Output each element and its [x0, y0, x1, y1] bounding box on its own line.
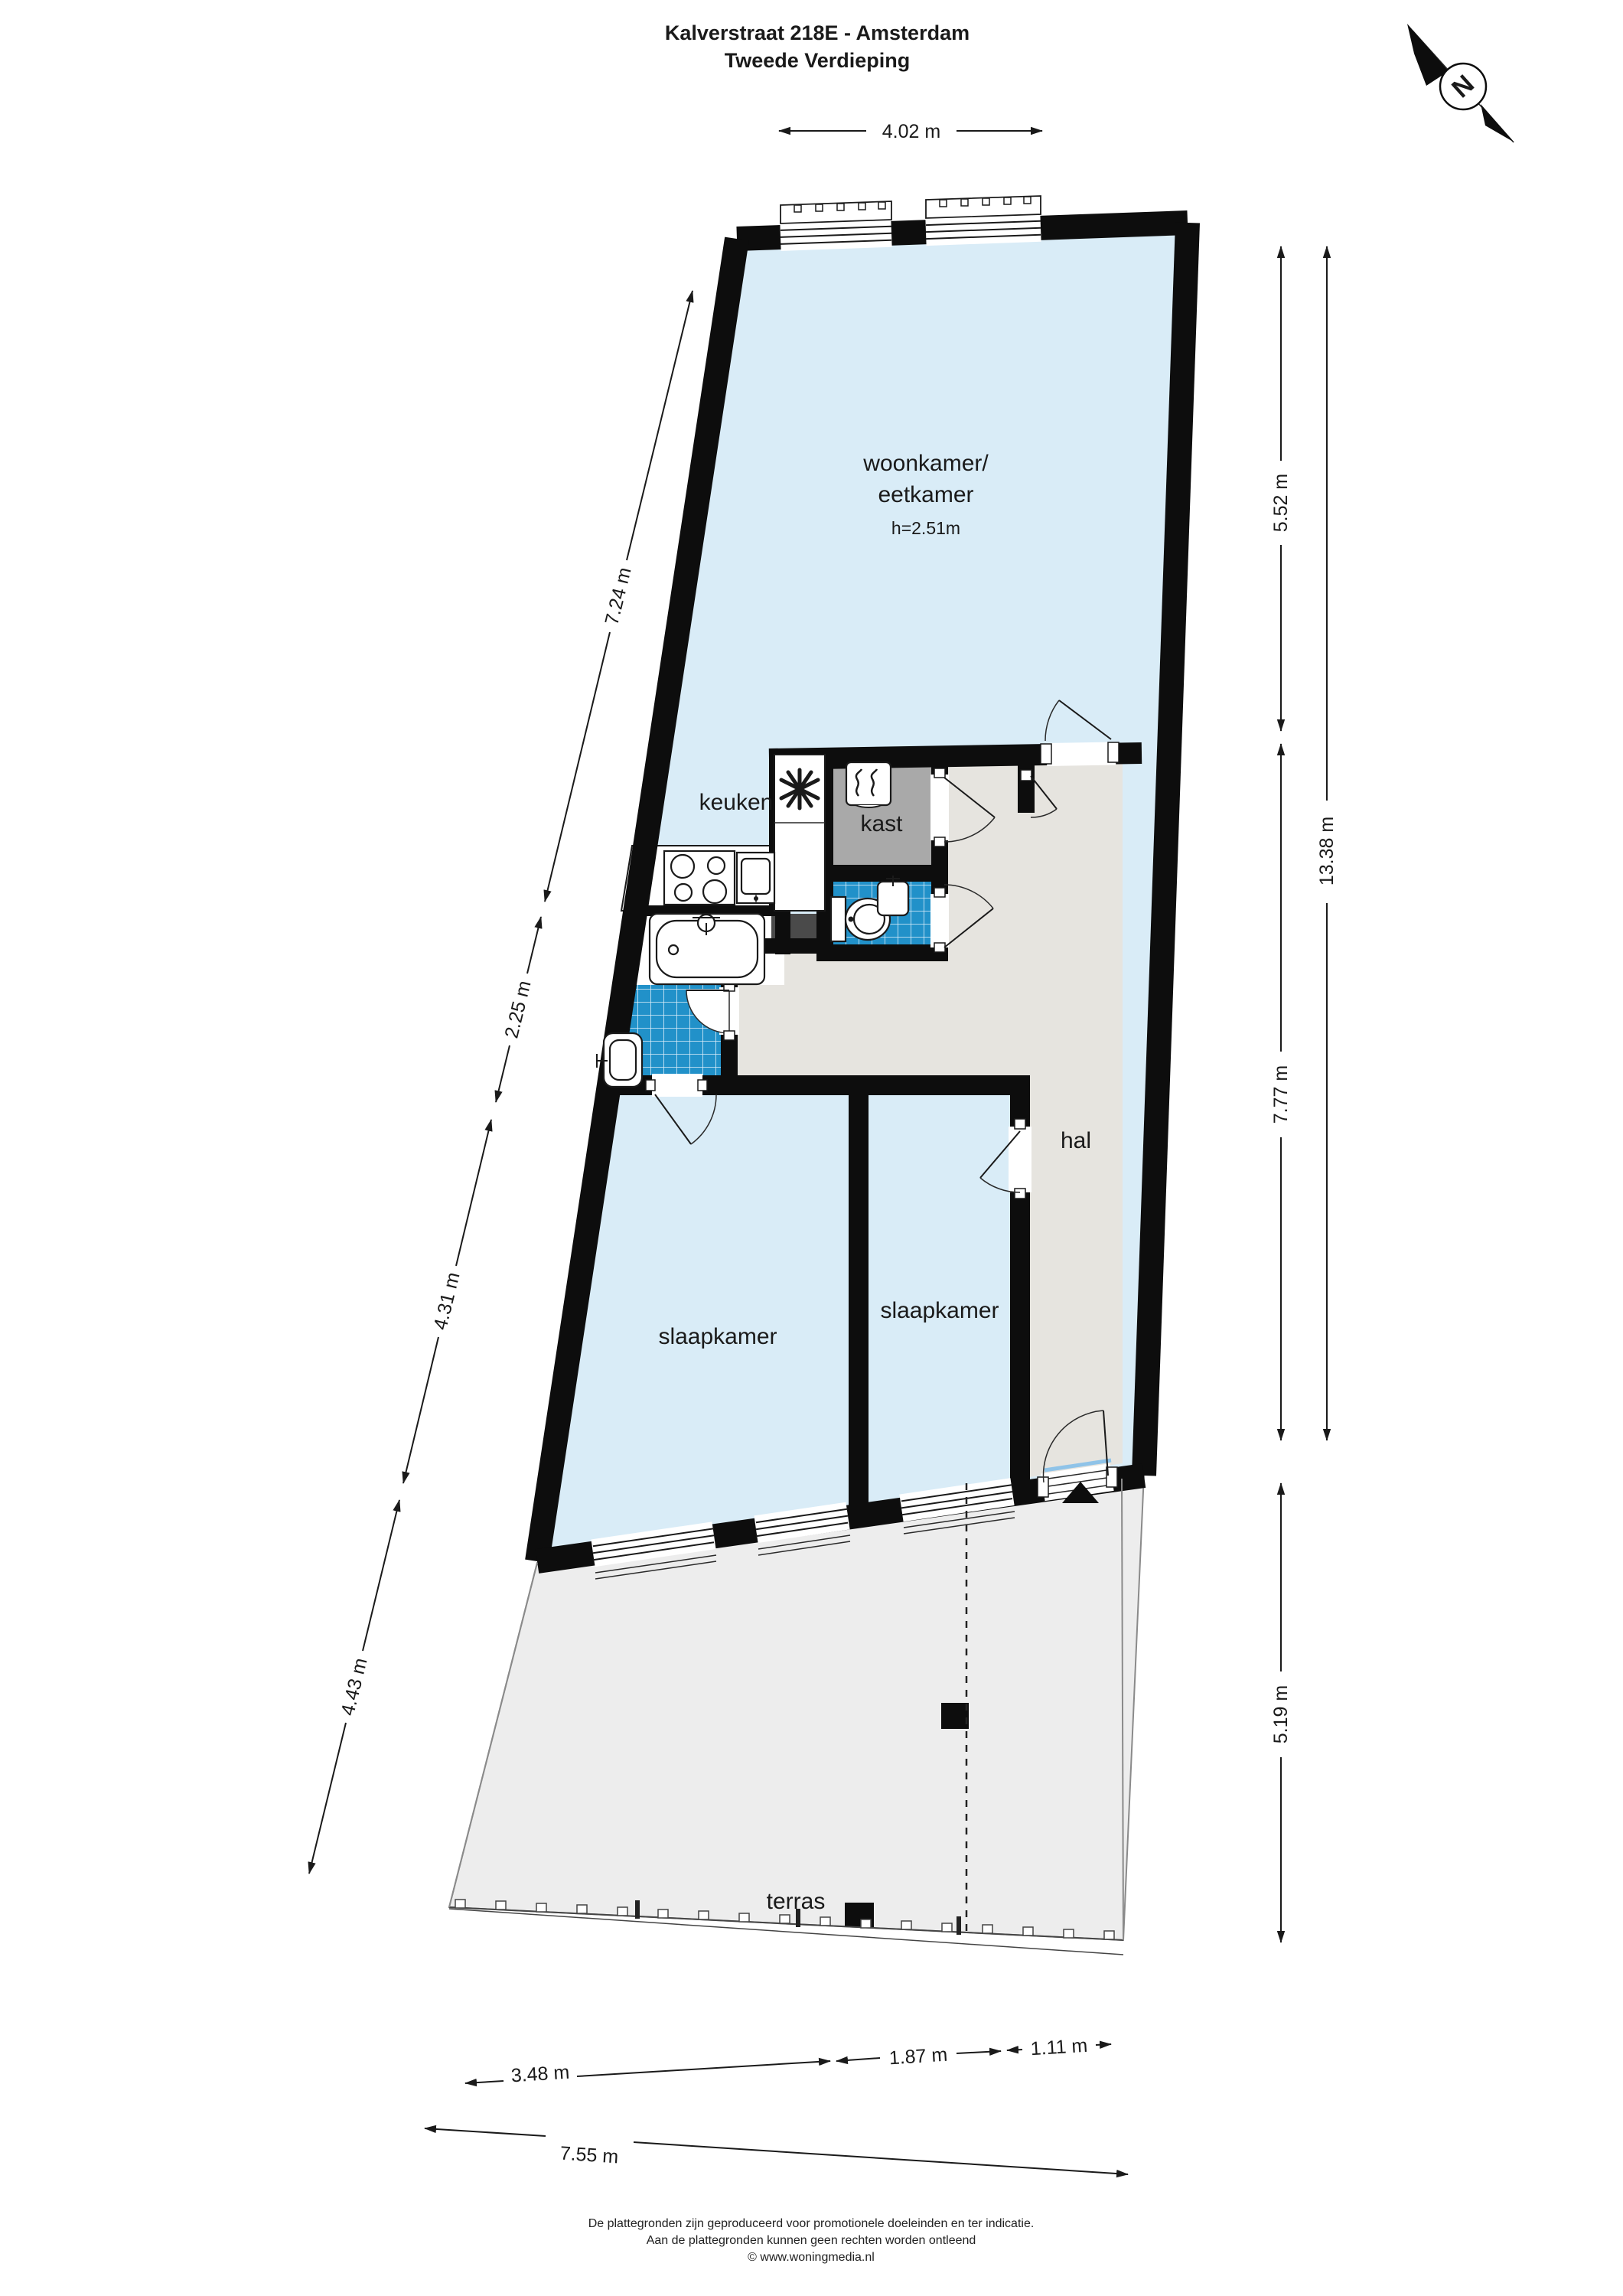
dim-bottom-111: 1.11 m — [1030, 2035, 1088, 2060]
stove-icon — [664, 851, 735, 905]
toilet-sink-icon — [878, 876, 908, 915]
label-woonkamer-1: woonkamer/ — [862, 451, 989, 476]
hal-corridor — [729, 949, 1123, 1075]
dim-left-1: 7.24 m — [601, 566, 635, 628]
dim-right-1338: 13.38 m — [1316, 817, 1338, 885]
window-top-2 — [926, 196, 1041, 239]
label-terras: terras — [767, 1889, 826, 1914]
boiler-icon — [846, 762, 891, 807]
label-kast: kast — [860, 811, 903, 837]
footer-line-3: © www.woningmedia.nl — [748, 2251, 875, 2264]
dim-top: 4.02 m — [882, 121, 940, 142]
dim-bottom-755: 7.55 m — [559, 2143, 619, 2168]
dim-right-777: 7.77 m — [1270, 1065, 1292, 1124]
floorplan-page: Kalverstraat 218E - Amsterdam Tweede Ver… — [0, 0, 1623, 2296]
footer-disclaimer: De plattegronden zijn geproduceerd voor … — [588, 2217, 1035, 2264]
label-woonkamer-2: eetkamer — [878, 482, 973, 507]
dim-left-3: 4.31 m — [429, 1270, 464, 1332]
compass-icon: N — [1407, 24, 1514, 142]
dim-left-4: 4.43 m — [337, 1656, 371, 1718]
page-title: Kalverstraat 218E - Amsterdam Tweede Ver… — [665, 21, 970, 72]
dim-left-2: 2.25 m — [500, 979, 535, 1041]
label-keuken: keuken — [699, 790, 774, 815]
label-slaapkamer-links: slaapkamer — [658, 1324, 777, 1349]
bathtub-icon — [650, 914, 764, 984]
title-address: Kalverstraat 218E - Amsterdam — [665, 21, 970, 44]
window-top-1 — [781, 201, 891, 244]
kitchen-sink-icon — [737, 853, 774, 903]
bathroom-sink-icon — [597, 1033, 642, 1087]
floorplan-drawing: Kalverstraat 218E - Amsterdam Tweede Ver… — [0, 0, 1623, 2296]
dim-right-519: 5.19 m — [1270, 1685, 1292, 1743]
label-hal: hal — [1061, 1128, 1091, 1153]
footer-line-2: Aan de plattegronden kunnen geen rechten… — [647, 2234, 976, 2247]
footer-line-1: De plattegronden zijn geproduceerd voor … — [588, 2217, 1035, 2230]
dim-bottom-348: 3.48 m — [510, 2062, 570, 2087]
dim-bottom-187: 1.87 m — [888, 2044, 948, 2069]
terras-pillar-1 — [941, 1703, 969, 1729]
label-woonkamer-height: h=2.51m — [891, 518, 960, 538]
title-floor: Tweede Verdieping — [725, 49, 911, 72]
dim-right-552: 5.52 m — [1270, 474, 1292, 532]
label-slaapkamer-rechts: slaapkamer — [880, 1298, 999, 1323]
